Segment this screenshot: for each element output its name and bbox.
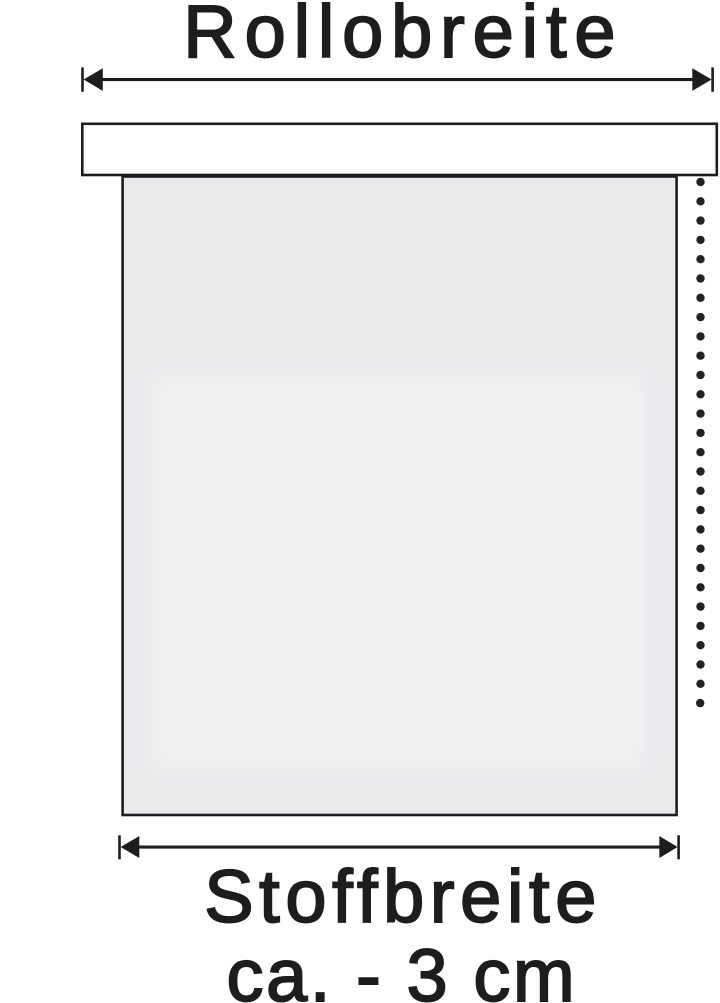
svg-text:Stoffbreite: Stoffbreite xyxy=(204,855,602,938)
svg-text:Rollobreite: Rollobreite xyxy=(183,0,623,73)
svg-text:ca. - 3 cm: ca. - 3 cm xyxy=(227,934,578,1003)
